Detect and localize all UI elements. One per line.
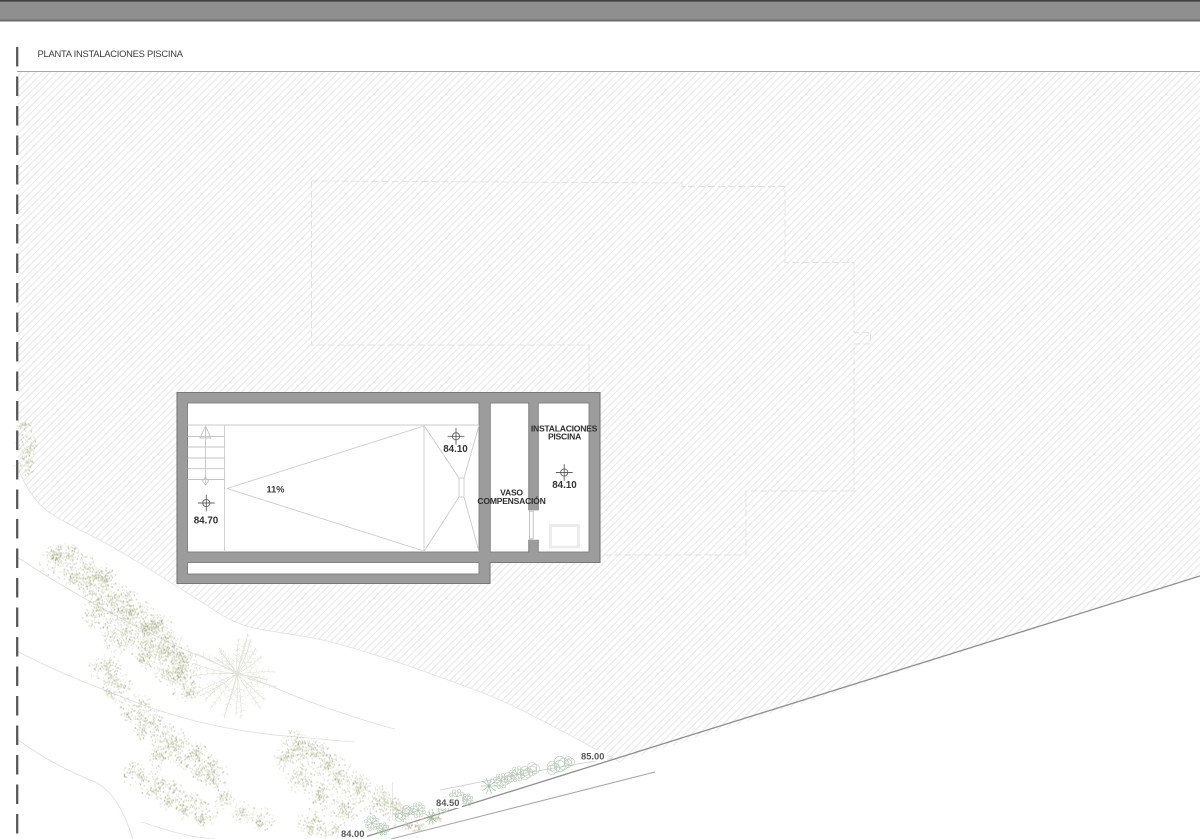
- svg-text:11%: 11%: [267, 485, 285, 495]
- svg-text:84.10: 84.10: [443, 444, 468, 455]
- svg-text:PISCINA: PISCINA: [548, 432, 581, 442]
- svg-text:84.70: 84.70: [194, 516, 219, 527]
- svg-text:PLANTA INSTALACIONES PISCINA: PLANTA INSTALACIONES PISCINA: [38, 48, 184, 59]
- svg-text:85.00: 85.00: [581, 751, 604, 762]
- svg-text:COMPENSACIÓN: COMPENSACIÓN: [477, 495, 545, 506]
- svg-text:84.10: 84.10: [552, 480, 577, 491]
- svg-text:84.00: 84.00: [341, 828, 364, 839]
- svg-text:84.50: 84.50: [436, 797, 459, 808]
